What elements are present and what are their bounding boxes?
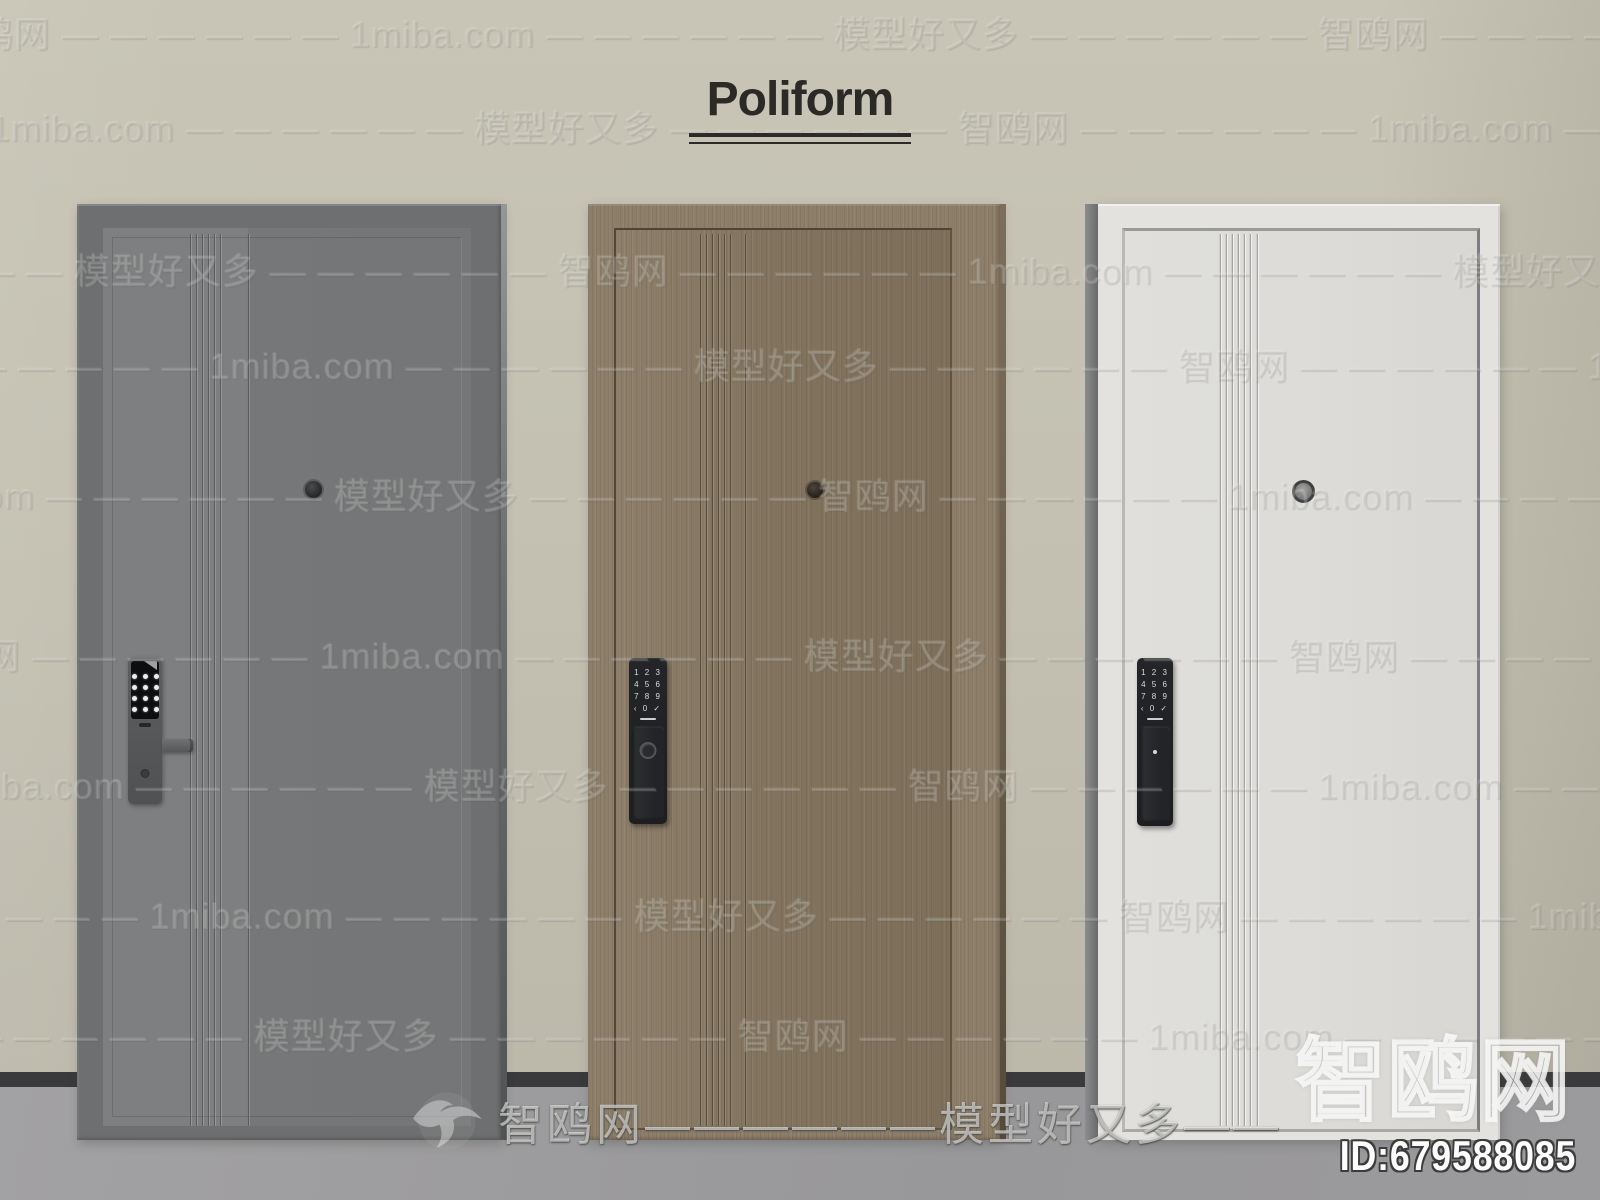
smart-lock-keypad-lever [128, 657, 162, 804]
peephole [805, 480, 825, 500]
keypad-row: ‹ 0 ✓ [629, 703, 667, 715]
keypad-dot [132, 685, 137, 690]
keypad-row: ‹ 0 ✓ [1137, 703, 1173, 715]
brand-header: Poliform [0, 72, 1600, 144]
lock-keypad-panel [131, 661, 159, 719]
keypad-dot [132, 696, 137, 701]
keypad-dot [132, 707, 137, 712]
keypad-dot [143, 707, 148, 712]
peephole [303, 479, 324, 500]
keypad-row: 4 5 6 [1137, 679, 1173, 691]
keypad-row: 4 5 6 [629, 679, 667, 691]
lock-grip [632, 726, 664, 819]
lock-keypad: 1 2 3 4 5 6 7 8 9 ‹ 0 ✓ [1137, 667, 1173, 715]
keypad-dot [132, 674, 137, 679]
brand-underline-thin [689, 142, 911, 144]
door-white-jamb-shadow [1085, 204, 1098, 1140]
keypad-row: 7 8 9 [1137, 691, 1173, 703]
lock-panel-notch [144, 661, 157, 670]
keypad-dot-grid [131, 674, 159, 712]
keyhole [141, 769, 150, 778]
keypad-dot [143, 685, 148, 690]
product-render-scene: Poliform [0, 0, 1600, 1200]
lever-handle [162, 739, 193, 752]
keypad-dot [154, 696, 159, 701]
door-wood-side-edge [1000, 204, 1006, 1140]
keypad-row: 7 8 9 [629, 691, 667, 703]
keypad-dot [143, 674, 148, 679]
smart-lock-vertical: 1 2 3 4 5 6 7 8 9 ‹ 0 ✓ [1137, 658, 1173, 826]
lock-grip [1140, 726, 1170, 821]
lock-grip-dot [1153, 750, 1157, 754]
keypad-dot [154, 707, 159, 712]
door-wood: 1 2 3 4 5 6 7 8 9 ‹ 0 ✓ [588, 204, 1006, 1140]
lock-knob [640, 742, 657, 759]
brand-underline-thick [689, 133, 911, 137]
door-grey-side-edge [501, 204, 507, 1140]
peephole [1292, 480, 1315, 503]
lock-keypad: 1 2 3 4 5 6 7 8 9 ‹ 0 ✓ [629, 667, 667, 715]
lock-speaker-slot [139, 723, 151, 727]
keypad-dot [154, 685, 159, 690]
keypad-row: 1 2 3 [629, 667, 667, 679]
door-white-panel [1122, 228, 1480, 1132]
smart-lock-vertical: 1 2 3 4 5 6 7 8 9 ‹ 0 ✓ [629, 658, 667, 824]
keypad-row: 1 2 3 [1137, 667, 1173, 679]
brand-title: Poliform [707, 72, 894, 127]
door-white: 1 2 3 4 5 6 7 8 9 ‹ 0 ✓ [1085, 204, 1506, 1140]
door-grey [77, 204, 507, 1140]
lock-indicator [640, 718, 656, 720]
lock-indicator [1147, 718, 1163, 720]
keypad-dot [143, 696, 148, 701]
keypad-dot [154, 674, 159, 679]
